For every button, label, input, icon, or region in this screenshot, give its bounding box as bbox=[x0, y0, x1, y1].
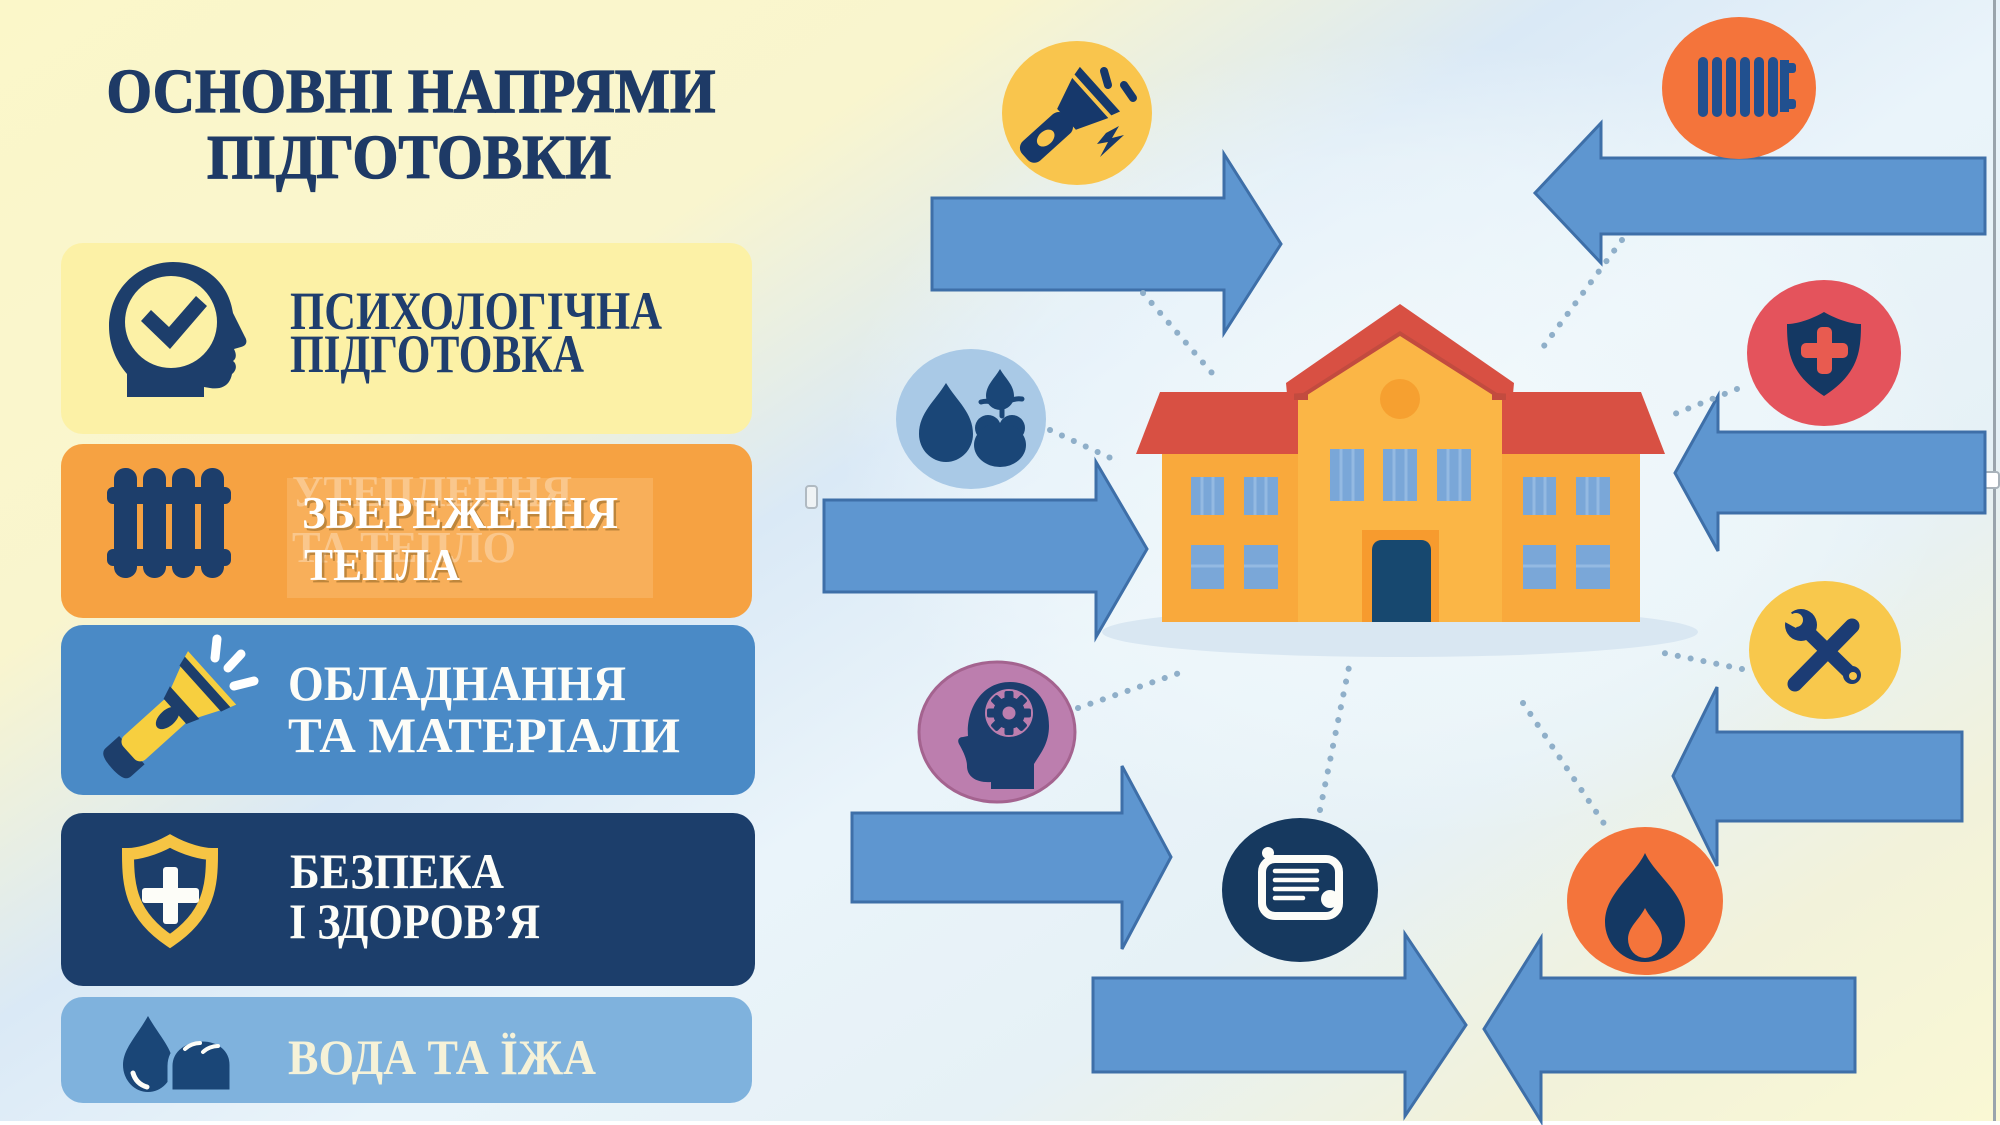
svg-text:ПІДГОТОВКИ: ПІДГОТОВКИ bbox=[207, 124, 611, 192]
svg-text:ОСНОВНІ НАПРЯМИ: ОСНОВНІ НАПРЯМИ bbox=[107, 58, 716, 126]
svg-text:І ЗДОРОВ’Я: І ЗДОРОВ’Я bbox=[289, 893, 540, 949]
svg-text:БЕЗПЕКА: БЕЗПЕКА bbox=[290, 843, 504, 899]
svg-text:ТА МАТЕРІАЛИ: ТА МАТЕРІАЛИ bbox=[288, 707, 680, 763]
svg-text:ОБЛАДНАННЯ: ОБЛАДНАННЯ bbox=[288, 655, 626, 711]
svg-text:ТЕПЛА: ТЕПЛА bbox=[304, 539, 460, 590]
svg-text:ЗБЕРЕЖЕННЯ: ЗБЕРЕЖЕННЯ bbox=[302, 487, 618, 538]
svg-text:ВОДА ТА ЇЖА: ВОДА ТА ЇЖА bbox=[288, 1029, 596, 1085]
svg-text:ПІДГОТОВКА: ПІДГОТОВКА bbox=[290, 324, 584, 384]
